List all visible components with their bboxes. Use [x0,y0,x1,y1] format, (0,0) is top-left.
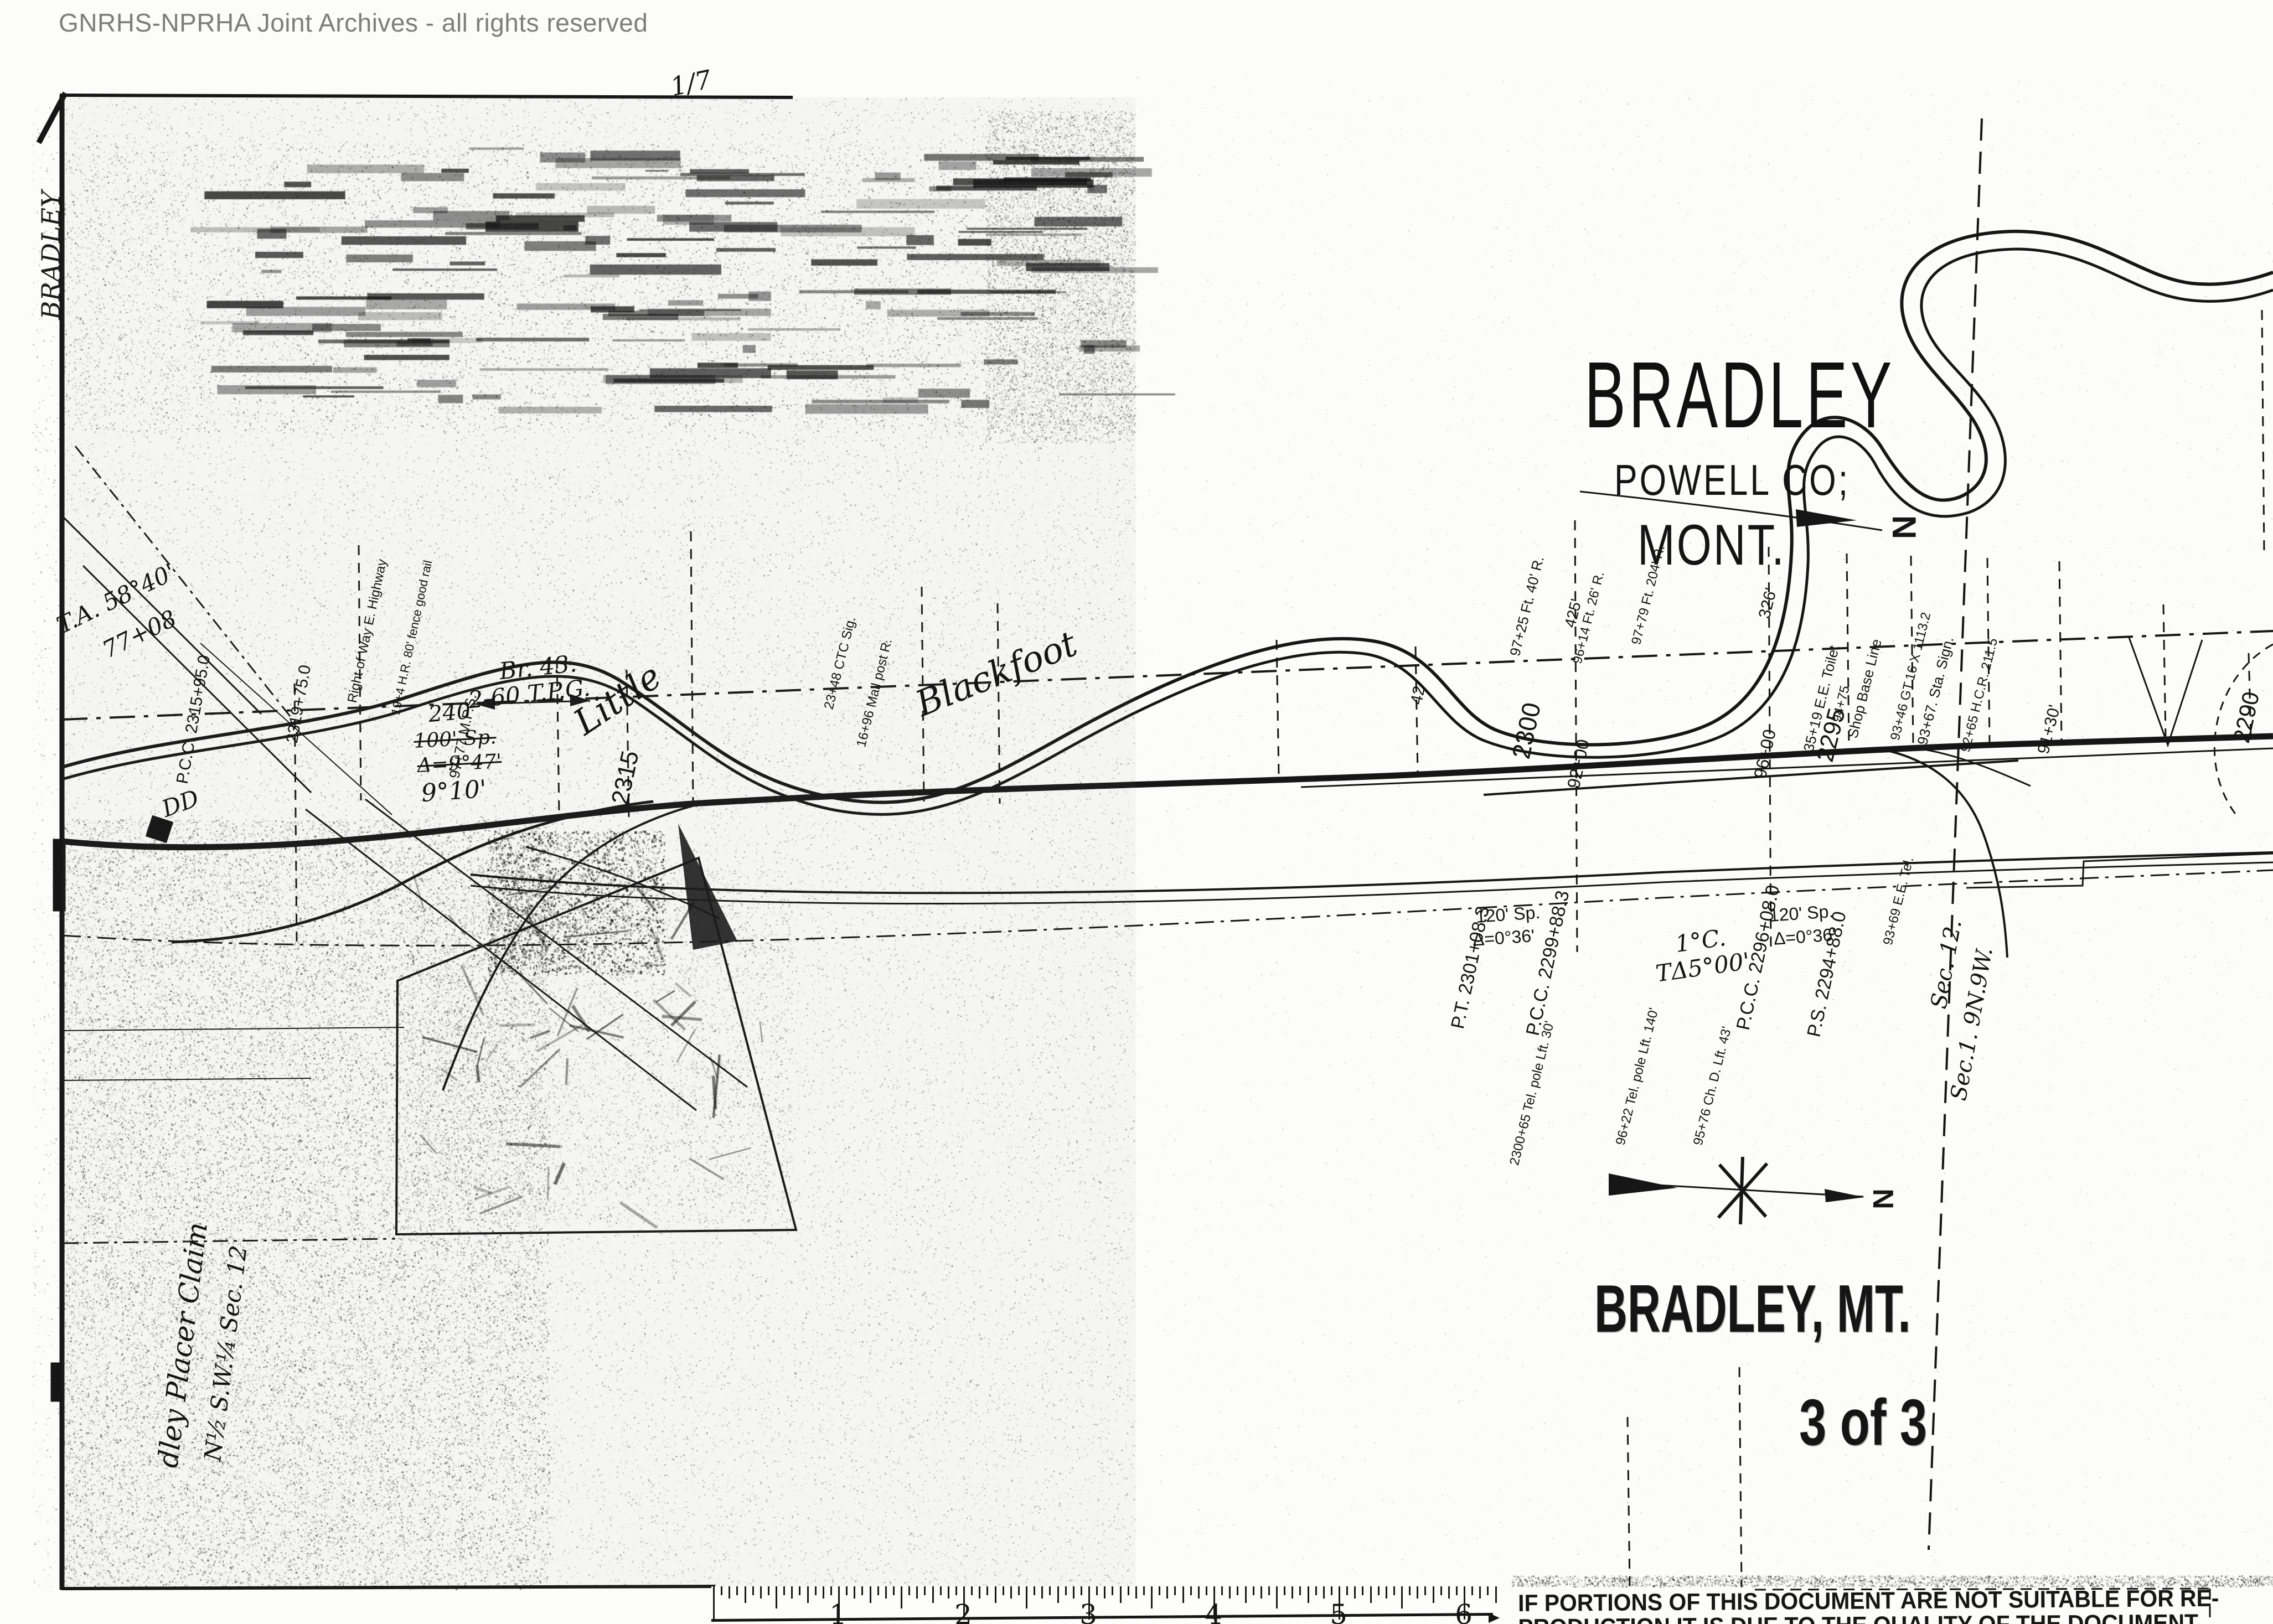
ruler-tick [1245,1586,1247,1603]
reproduction-disclaimer: IF PORTIONS OF THIS DOCUMENT ARE NOT SUI… [1518,1587,2219,1624]
ruler-tick [721,1586,722,1595]
ruler-tick [1292,1586,1293,1599]
ruler-tick [995,1586,996,1603]
map-labels-layer: GNRHS-NPRHA Joint Archives - all rights … [0,0,2273,1624]
ruler-tick [1448,1586,1450,1599]
ruler-tick [1315,1586,1317,1595]
map-annotation: Right of Way E. Highway [346,558,389,704]
ruler-tick [1495,1586,1497,1603]
archive-watermark: GNRHS-NPRHA Joint Archives - all rights … [59,8,648,38]
ruler-tick [1104,1586,1105,1599]
ruler-tick [861,1586,863,1595]
map-title-city: BRADLEY [1584,341,1895,449]
map-annotation: Blackfoot [911,626,1082,722]
ruler-tick [971,1586,973,1595]
ruler-tick [1221,1586,1223,1595]
map-annotation: 2300+65 Tel. pole Lft. 30' [1508,1020,1557,1167]
ruler-tick [1386,1586,1387,1599]
ruler-tick [768,1586,769,1595]
ruler-tick [1198,1586,1200,1599]
ruler-tick [1135,1586,1137,1599]
scanned-map-page: GNRHS-NPRHA Joint Archives - all rights … [0,0,2273,1624]
ruler-tick [1253,1586,1254,1595]
map-annotation: 326' [1757,586,1780,620]
map-annotation: 95+76 Ch. D. Lft. 43' [1692,1025,1734,1146]
ruler-tick [1096,1586,1098,1595]
ruler-tick [955,1586,957,1595]
ruler-tick [752,1586,754,1595]
ruler-tick [1284,1586,1285,1595]
scale-ruler: 123456 [711,1586,1500,1624]
ruler-number: 3 [1079,1599,1097,1624]
ruler-tick [1159,1586,1160,1595]
map-title-county: POWELL CO; [1614,455,1850,505]
ruler-tick [1073,1586,1074,1599]
ruler-tick [1112,1586,1113,1595]
ruler-tick [877,1586,879,1595]
ruler-tick [1065,1586,1067,1595]
map-annotation: TΔ5°00' [1654,949,1751,985]
map-annotation: 2290 [2230,690,2264,745]
ruler-tick [1057,1586,1059,1603]
ruler-tick [1151,1586,1153,1609]
ruler-tick [948,1586,949,1599]
map-annotation: 9°10' [421,777,488,806]
ruler-tick [1026,1586,1027,1609]
ruler-tick [1331,1586,1332,1595]
ruler-tick [807,1586,809,1603]
ruler-tick [713,1586,715,1620]
ruler-number: 6 [1455,1599,1473,1624]
map-annotation: 16+96 Mail post R. [855,638,895,749]
map-annotation: 2315 [608,749,643,807]
ruler-tick [893,1586,895,1595]
ruler-tick [1456,1586,1458,1595]
ruler-tick [1166,1586,1168,1599]
ruler-tick [791,1586,793,1599]
ruler-tick [1409,1586,1411,1595]
ruler-tick [1206,1586,1207,1595]
ruler-tick [1440,1586,1442,1595]
ruler-arrow-icon [1489,1613,1500,1623]
ruler-tick [1433,1586,1434,1603]
ruler-tick [823,1586,824,1599]
map-annotation: 2319+75.0 [284,664,314,744]
ruler-tick [1346,1586,1348,1595]
map-annotation: 92+65 H.C.R. 211.5 [1959,637,2000,754]
station-stamp-name: BRADLEY, MT. [1594,1270,1911,1347]
map-annotation: 96+00 [1751,728,1779,780]
ruler-tick [1323,1586,1325,1599]
ruler-tick [1041,1586,1043,1599]
map-annotation: 92+00 [1564,738,1592,790]
ruler-tick [1120,1586,1122,1603]
ruler-tick [729,1586,730,1599]
compass-north-label: N [1866,1188,1899,1209]
ruler-number: 5 [1330,1599,1347,1624]
ruler-tick [1003,1586,1004,1595]
ruler-tick [908,1586,910,1595]
ruler-tick [932,1586,934,1603]
map-annotation: 96+22 Tel. pole Lft. 140' [1614,1007,1661,1147]
ruler-tick [745,1586,746,1603]
ruler-tick [1378,1586,1380,1595]
title-north-label: N [1885,515,1923,539]
ruler-tick [1308,1586,1309,1603]
ruler-tick [1182,1586,1184,1603]
ruler-tick [736,1586,738,1595]
ruler-tick [1471,1586,1473,1595]
map-annotation: 97+25 Ft. 40' R. [1507,555,1546,658]
ruler-tick [1261,1586,1262,1599]
ruler-tick [1354,1586,1356,1599]
ruler-number: 1 [829,1599,847,1624]
ruler-tick [760,1586,762,1599]
map-annotation: 120' Sp. [1769,902,1834,924]
ruler-tick [1479,1586,1481,1599]
ruler-tick [1417,1586,1418,1599]
ruler-tick [924,1586,926,1595]
ruler-tick [979,1586,980,1599]
ruler-tick [783,1586,785,1595]
map-annotation: DD [159,787,202,821]
ruler-tick [1370,1586,1372,1603]
ruler-tick [1143,1586,1145,1595]
map-annotation: 1/7 [668,66,714,100]
ruler-tick [1190,1586,1192,1595]
ruler-tick [846,1586,848,1595]
ruler-tick [1362,1586,1363,1595]
ruler-number: 4 [1205,1599,1222,1624]
ruler-tick [1081,1586,1082,1595]
ruler-tick [1018,1586,1020,1595]
ruler-tick [815,1586,817,1595]
map-annotation: 23+48 CTC Sig. [823,616,859,711]
map-annotation: 93+69 E.E. Tel. [1882,856,1916,947]
ruler-tick [799,1586,800,1595]
ruler-tick [1401,1586,1403,1609]
ruler-tick [870,1586,871,1603]
ruler-tick [1487,1586,1489,1595]
ruler-tick [776,1586,777,1609]
map-annotation: 120' Sp. [1475,903,1541,925]
map-annotation: Little [568,658,667,741]
ruler-tick [916,1586,918,1599]
ruler-tick [940,1586,942,1595]
ruler-baseline [711,1613,1493,1622]
ruler-number: 2 [954,1599,972,1624]
ruler-tick [885,1586,887,1599]
ruler-tick [1128,1586,1129,1595]
map-annotation: 2300 [1508,700,1544,761]
ruler-tick [1424,1586,1426,1595]
ruler-tick [1174,1586,1176,1595]
map-annotation: P.C.C. 2315+95.0 [174,654,213,785]
ruler-tick [1229,1586,1231,1599]
ruler-tick [1393,1586,1395,1595]
ruler-tick [1034,1586,1035,1595]
station-stamp-sheet: 3 of 3 [1799,1385,1927,1460]
map-annotation: Δ=0°36' [1773,925,1836,948]
ruler-tick [1276,1586,1278,1609]
ruler-tick [1049,1586,1051,1595]
map-annotation: 42 [1408,685,1428,706]
ruler-tick [1268,1586,1270,1595]
ruler-tick [1237,1586,1238,1595]
map-annotation: 19+4 H.R. 80' fence good rail [390,559,435,716]
margin-note-vertical: BRADLEY [36,183,61,327]
map-annotation: 91+30' [2036,704,2064,756]
map-annotation: Sec. 12. [1928,918,1965,1010]
ruler-tick [986,1586,988,1595]
ruler-tick [1010,1586,1012,1599]
ruler-tick [901,1586,902,1609]
ruler-tick [1299,1586,1301,1595]
ruler-tick [854,1586,855,1599]
map-annotation: N½ S.W.¼ Sec. 12 [201,1244,250,1462]
map-annotation: Δ=0°36' [1472,927,1535,949]
ruler-tick [830,1586,832,1595]
